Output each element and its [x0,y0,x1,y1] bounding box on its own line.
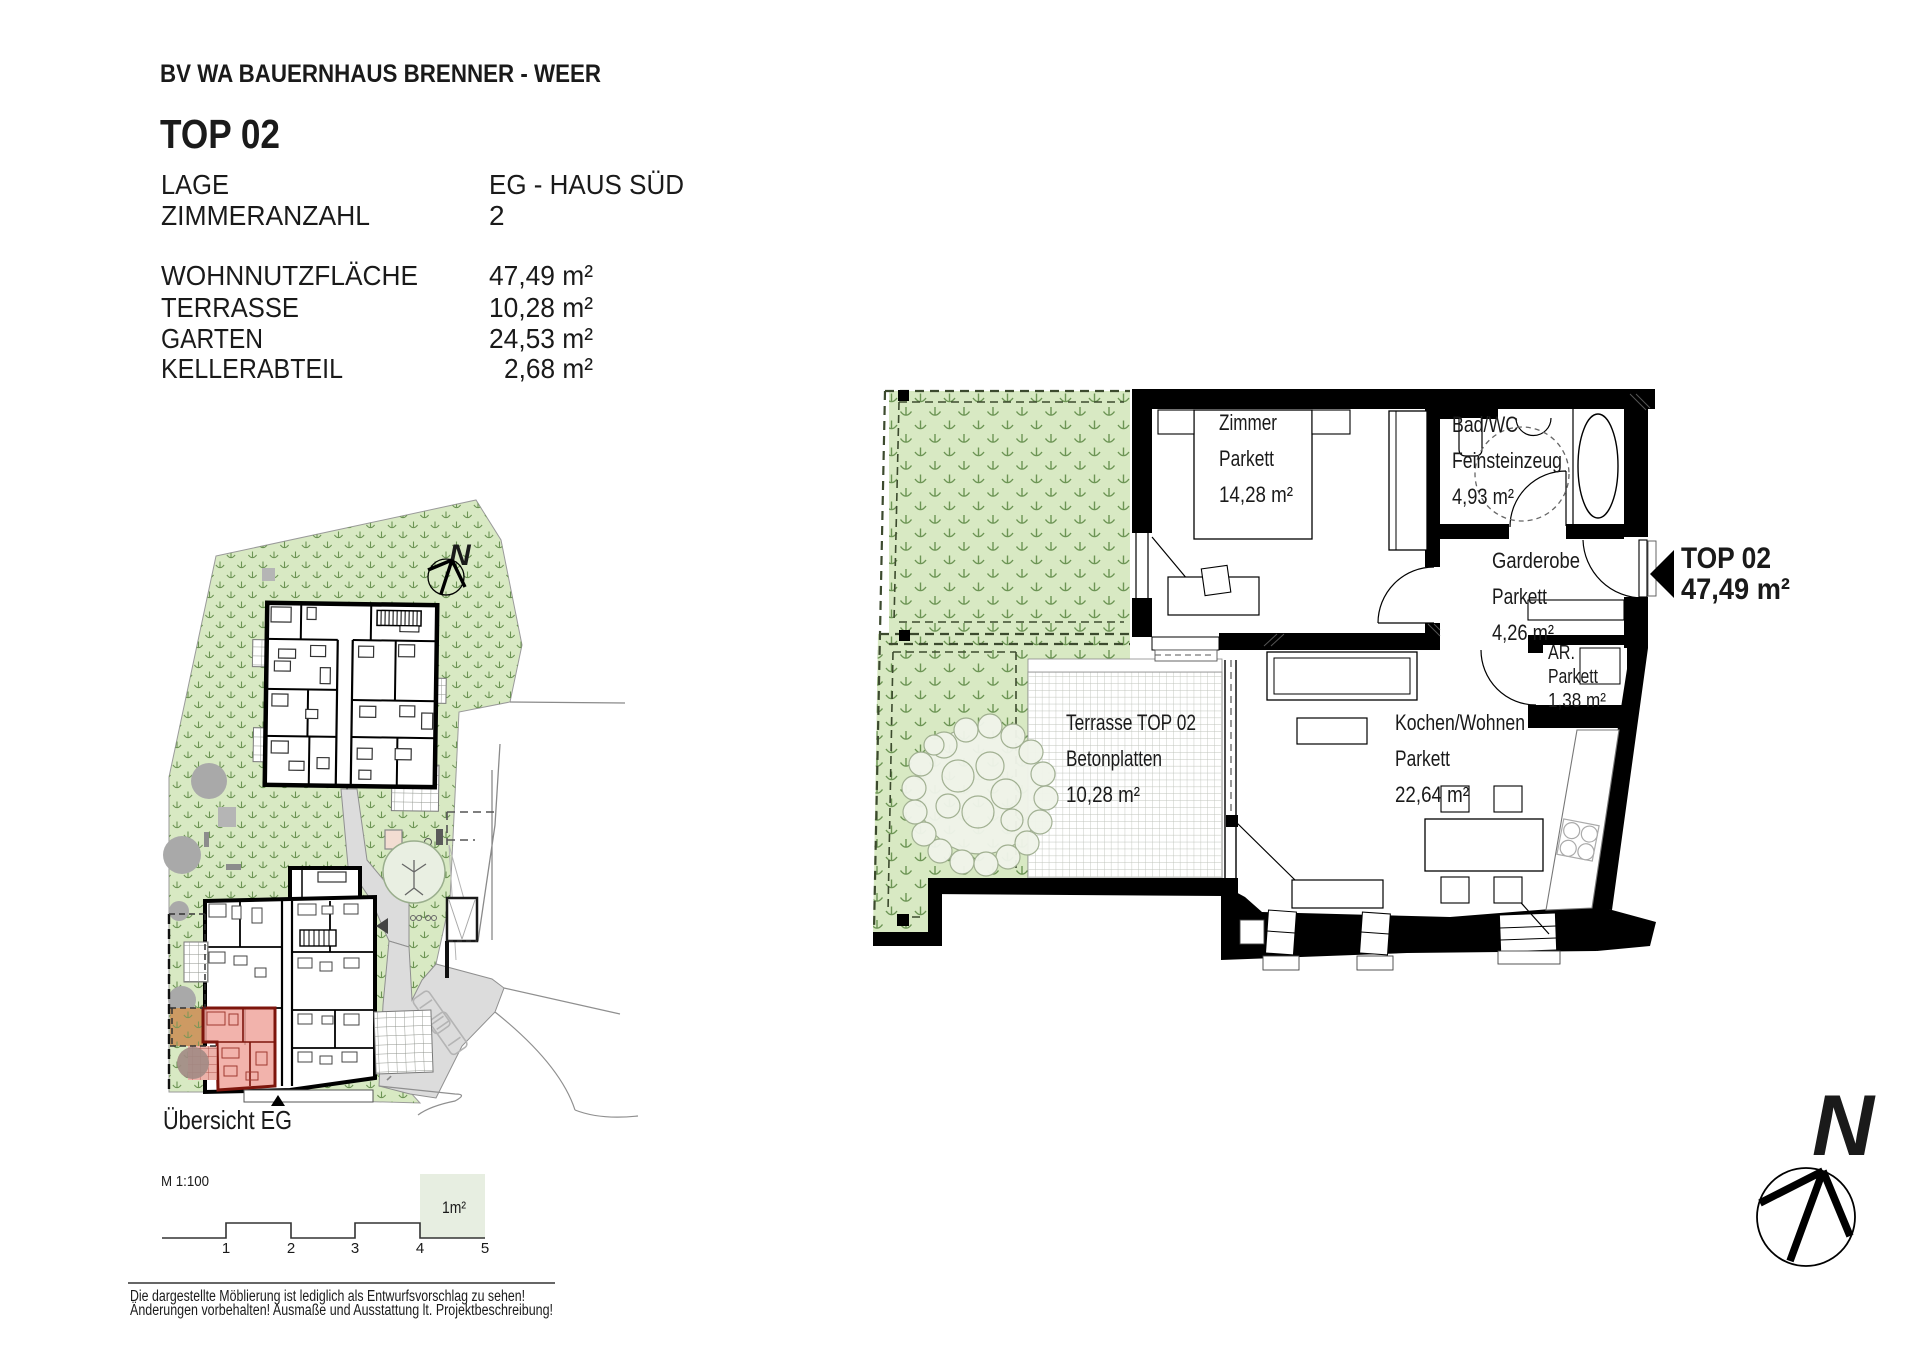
svg-text:47,49 m²: 47,49 m² [1681,573,1790,606]
svg-text:22,64 m²: 22,64 m² [1395,782,1469,807]
svg-text:Parkett: Parkett [1219,446,1274,471]
svg-text:EG - HAUS SÜD: EG - HAUS SÜD [489,169,684,200]
svg-text:Parkett: Parkett [1395,746,1450,771]
svg-text:2: 2 [287,1240,295,1257]
svg-text:M 1:100: M 1:100 [161,1173,209,1190]
svg-text:LAGE: LAGE [161,169,229,200]
svg-text:4: 4 [416,1240,424,1257]
svg-text:24,53 m²: 24,53 m² [489,323,593,354]
svg-text:AR.: AR. [1548,642,1575,664]
svg-text:BV WA BAUERNHAUS BRENNER - WEE: BV WA BAUERNHAUS BRENNER - WEER [160,60,601,88]
svg-text:1: 1 [222,1240,230,1257]
svg-text:47,49 m²: 47,49 m² [489,260,593,291]
svg-text:14,28 m²: 14,28 m² [1219,482,1293,507]
svg-text:Änderungen vorbehalten! Ausmaß: Änderungen vorbehalten! Ausmaße und Auss… [130,1302,553,1319]
svg-text:Übersicht EG: Übersicht EG [163,1105,292,1135]
svg-text:GARTEN: GARTEN [161,323,263,354]
svg-text:KELLERABTEIL: KELLERABTEIL [161,353,343,384]
svg-text:1,38 m²: 1,38 m² [1548,690,1606,712]
svg-text:N: N [1812,1078,1876,1174]
svg-text:TERRASSE: TERRASSE [161,292,299,323]
svg-text:Garderobe: Garderobe [1492,548,1580,573]
svg-text:3: 3 [351,1240,359,1257]
svg-text:Kochen/Wohnen: Kochen/Wohnen [1395,710,1525,735]
svg-text:10,28 m²: 10,28 m² [489,292,593,323]
svg-text:Betonplatten: Betonplatten [1066,746,1162,771]
svg-text:Bad/WC: Bad/WC [1452,412,1518,437]
svg-text:Terrasse TOP 02: Terrasse TOP 02 [1066,710,1196,735]
svg-text:TOP 02: TOP 02 [160,111,280,157]
svg-text:10,28 m²: 10,28 m² [1066,782,1140,807]
svg-text:TOP 02: TOP 02 [1681,542,1771,575]
svg-text:1m²: 1m² [442,1198,466,1217]
svg-text:Parkett: Parkett [1548,666,1598,688]
svg-text:Zimmer: Zimmer [1219,410,1277,435]
svg-text:Feinsteinzeug: Feinsteinzeug [1452,448,1562,473]
svg-text:2,68 m²: 2,68 m² [504,353,593,384]
svg-text:ZIMMERANZAHL: ZIMMERANZAHL [161,200,370,231]
svg-text:Parkett: Parkett [1492,584,1547,609]
svg-text:4,93 m²: 4,93 m² [1452,484,1514,509]
svg-text:WOHNNUTZFLÄCHE: WOHNNUTZFLÄCHE [161,260,418,291]
svg-text:4,26 m²: 4,26 m² [1492,620,1554,645]
svg-text:5: 5 [481,1240,489,1257]
svg-text:2: 2 [489,200,505,231]
